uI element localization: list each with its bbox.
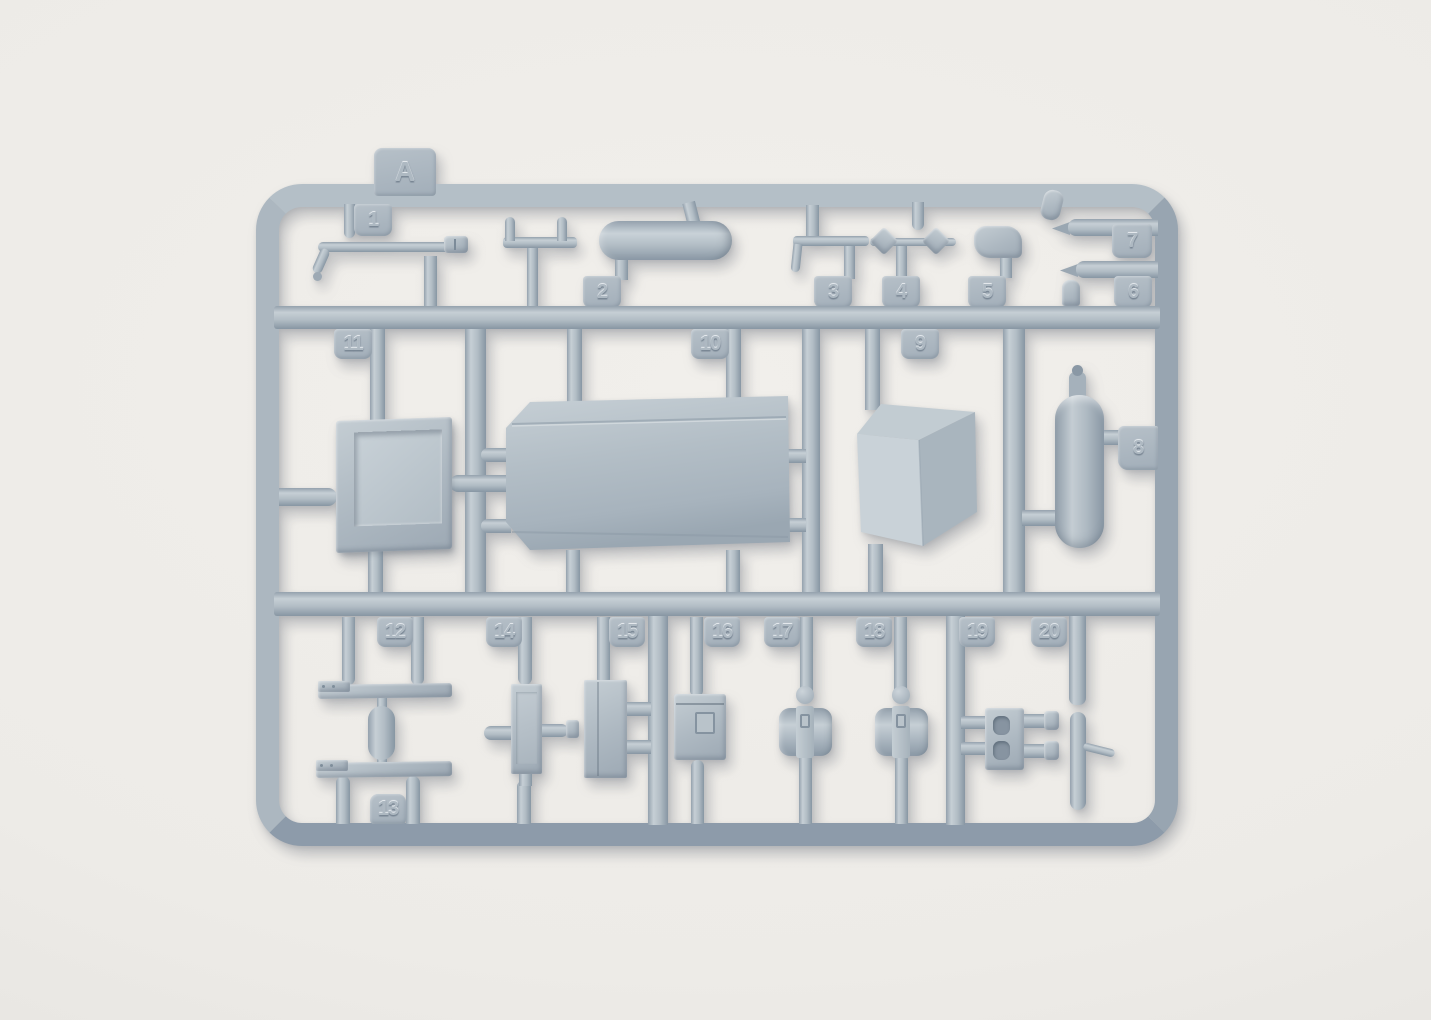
vertical-runner (1003, 326, 1025, 596)
part-tab-7: 7 (1112, 224, 1152, 258)
part-tab-13: 13 (370, 794, 406, 824)
sprue-gate-stub (799, 753, 812, 824)
part-8-cylinder (1055, 395, 1104, 548)
tab-19-label: 19 (967, 621, 987, 644)
part-3-bracket-bar (793, 236, 869, 246)
sprue-gate-stub (896, 246, 907, 278)
tab-16-label: 16 (712, 621, 732, 644)
part-1-clevis (444, 236, 468, 253)
part-tab-18: 18 (856, 617, 892, 647)
part-tab-3: 3 (814, 276, 852, 308)
tab-10-label: 10 (700, 333, 720, 356)
part-2-cylinder (599, 221, 732, 260)
part-tab-12: 12 (377, 617, 413, 647)
letter-tab-a: A (374, 148, 436, 196)
part-tab-14: 14 (486, 617, 522, 647)
sprue-gate-rod (279, 488, 337, 506)
part-5-hook-block (974, 226, 1022, 258)
part-tab-19: 19 (959, 617, 995, 647)
part-16-stowage-box (674, 694, 726, 760)
tab-2-label: 2 (597, 281, 607, 304)
sprue-gate-stub (336, 776, 350, 824)
rivet-dot (332, 685, 335, 688)
part-14-peg-cap (566, 720, 579, 738)
runner-rail-middle (274, 592, 1160, 616)
sprue-gate-stub (690, 617, 703, 697)
tab-12-label: 12 (385, 621, 405, 644)
part-tab-11: 11 (334, 329, 372, 359)
u-bracket-prong (505, 217, 515, 241)
sprue-gate-stub (519, 772, 532, 786)
oval-pad-part (368, 706, 395, 760)
sprue-gate-stub (342, 617, 355, 685)
sprue-gate-stub (691, 760, 704, 824)
part-14-peg (542, 724, 568, 737)
tab-5-label: 5 (982, 281, 992, 304)
sprue-gate-stub (627, 740, 651, 754)
part-16-latch (695, 712, 715, 734)
part-tab-15: 15 (609, 617, 645, 647)
tab-1-label: 1 (368, 209, 378, 232)
tab-14-label: 14 (494, 621, 514, 644)
part-9-cover (853, 398, 981, 552)
sprue-gate-stub (961, 716, 987, 729)
sprue-gate-stub (961, 742, 987, 755)
part-8-filler-cap (1072, 365, 1083, 376)
sprue-gate-stub (627, 702, 651, 716)
part-11-tray-recess (354, 429, 442, 526)
part-12-end-plate (318, 681, 350, 692)
part-tab-5: 5 (968, 276, 1006, 308)
part-18-sphere-gate (892, 686, 910, 704)
vertical-runner (465, 326, 486, 596)
vertical-runner (1070, 712, 1086, 810)
part-1-hook-ball (313, 272, 322, 281)
rivet-dot (320, 764, 323, 767)
part-1-clevis-slot (454, 239, 456, 250)
tab-13-label: 13 (378, 798, 398, 821)
tab-6-label: 6 (1128, 281, 1138, 304)
tab-4-label: 4 (896, 281, 906, 304)
part-19-slot (993, 716, 1010, 735)
part-11-tray (336, 417, 452, 553)
part-tab-8: 8 (1118, 426, 1158, 470)
vertical-runner (1069, 615, 1086, 705)
part-tab-2: 2 (583, 276, 621, 308)
part-19-peg-cap (1044, 741, 1059, 760)
part-tab-17: 17 (764, 617, 800, 647)
tab-11-label: 11 (343, 333, 362, 356)
sprue-gate-stub (1000, 256, 1012, 278)
tab-9-label: 9 (915, 333, 925, 356)
part-tab-6: 6 (1114, 276, 1152, 308)
sprue-gate-stub (844, 245, 855, 279)
sprue-gate-stub (895, 753, 908, 824)
part-tab-20: 20 (1031, 617, 1067, 647)
sprue-gate-stub (527, 248, 538, 310)
part-19-slot (993, 741, 1010, 760)
part-tab-10: 10 (691, 329, 729, 359)
sprue-gate-stub (912, 202, 924, 230)
tab-15-label: 15 (617, 621, 637, 644)
sprue-gate-stub (1022, 510, 1057, 526)
part-10-panel (496, 390, 796, 558)
part-tab-9: 9 (901, 329, 939, 359)
part-14-peg (484, 726, 512, 740)
part-16-lid-line (676, 703, 724, 705)
part-tab-16: 16 (704, 617, 740, 647)
tab-3-label: 3 (828, 281, 838, 304)
sprue-gate-stub (424, 256, 437, 310)
u-bracket-prong (557, 217, 567, 241)
tab-17-label: 17 (772, 621, 792, 644)
part-14-plate (511, 684, 542, 774)
tab-8-label: 8 (1133, 437, 1143, 460)
tab-20-label: 20 (1039, 621, 1059, 644)
part-18-buckle (896, 714, 906, 728)
part-15-block (584, 680, 627, 778)
runner-rail-upper (274, 306, 1160, 329)
sprue-gate-stub (517, 780, 531, 824)
sprue-gate-stub (370, 326, 385, 424)
small-cone-part (1062, 280, 1080, 306)
part-14-plate-face (516, 692, 537, 764)
part-15-ridge (597, 682, 599, 776)
part-tab-4: 4 (882, 276, 920, 308)
sprue-gate-stub (406, 776, 420, 824)
rivet-dot (330, 764, 333, 767)
tab-7-label: 7 (1127, 230, 1137, 253)
letter-tab-a-label: A (395, 156, 415, 188)
part-13-end-plate (316, 760, 348, 771)
part-19-peg-cap (1044, 711, 1059, 730)
part-19-bracket (985, 708, 1024, 770)
part-17-sphere-gate (796, 686, 814, 704)
rivet-dot (322, 685, 325, 688)
plastic-sprue: A 1 2 3 4 5 7 6 (0, 0, 1431, 1020)
photo-background: A 1 2 3 4 5 7 6 (0, 0, 1431, 1020)
part-17-buckle (800, 714, 810, 728)
tab-18-label: 18 (864, 621, 884, 644)
vertical-runner (648, 615, 668, 825)
part-tab-1: 1 (354, 204, 392, 236)
